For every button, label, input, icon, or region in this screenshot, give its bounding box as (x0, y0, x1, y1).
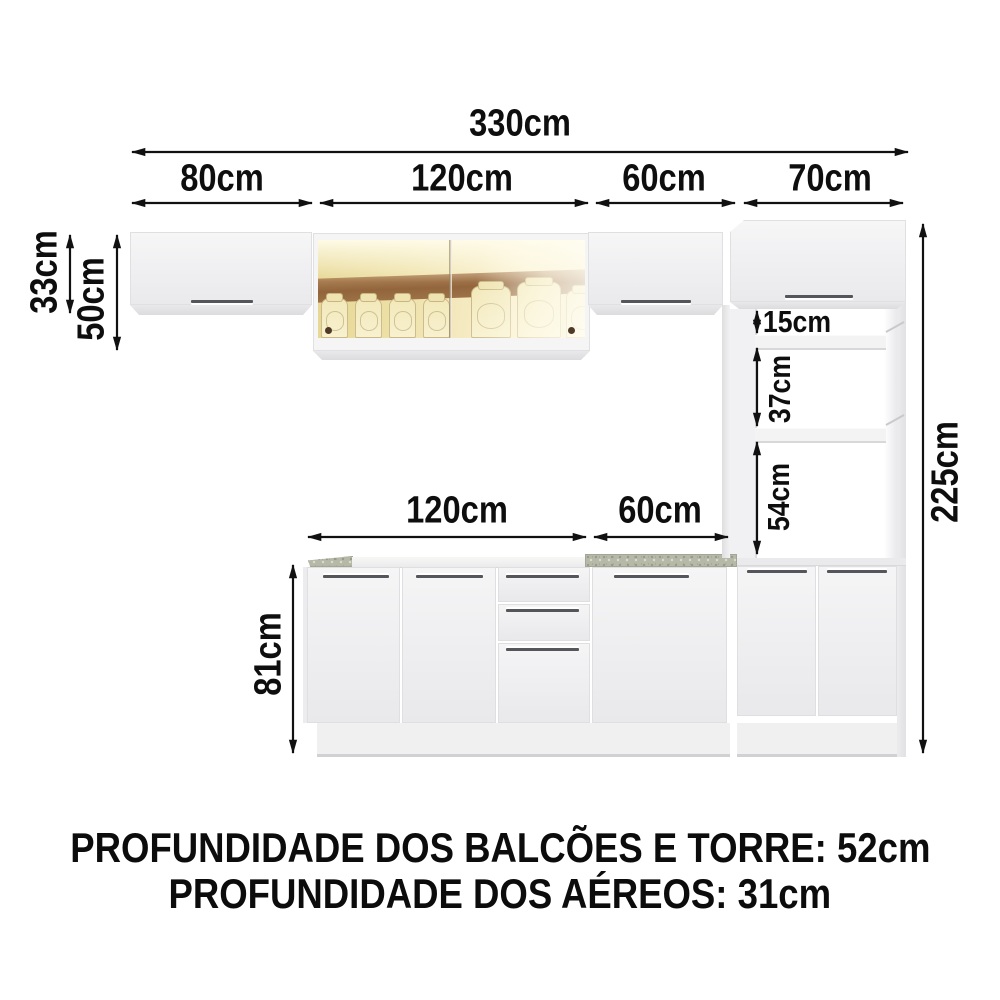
wall-cabinet-left (130, 232, 312, 305)
base-hob-door (592, 567, 727, 723)
tower-top-door (730, 220, 906, 302)
label-segment-70: 70cm (788, 158, 872, 201)
label-gap-15: 15cm (763, 304, 831, 340)
label-total-width: 330cm (469, 103, 571, 146)
glass-door-knob-left (325, 327, 332, 334)
base-plinth (317, 723, 730, 757)
base-door-1 (307, 567, 400, 723)
glass-door-divider (449, 240, 452, 338)
base-door-1-handle (323, 575, 389, 578)
tower-base-section (730, 558, 906, 723)
drawer-2-handle (506, 609, 579, 612)
label-height-81: 81cm (248, 612, 291, 696)
drawer-1-handle (506, 575, 579, 578)
kitchen-dimensions-diagram: 330cm 80cm 120cm 60cm 70cm 33cm 50cm 15c… (0, 0, 1000, 1000)
label-height-50: 50cm (71, 257, 114, 341)
wall-cabinet-60-handle (621, 300, 691, 303)
label-base-120: 120cm (406, 490, 508, 533)
niche-left-panel (730, 309, 757, 558)
tower-base-door-right-handle (827, 570, 887, 573)
tower-plinth (737, 723, 897, 757)
drawer-unit (498, 567, 590, 723)
base-hob-door-handle (614, 575, 689, 578)
wall-cabinet-left-handle (191, 300, 253, 303)
glass-wall-cabinet-glass (318, 240, 585, 338)
drawer-3-handle (506, 648, 579, 651)
label-base-60: 60cm (618, 490, 702, 533)
label-height-225: 225cm (925, 421, 968, 523)
footer-depth-line-1-text: PROFUNDIDADE DOS BALCÕES E TORRE: 52cm (70, 824, 930, 872)
glass-wall-cabinet (313, 233, 590, 351)
tower-open-niche (730, 309, 906, 558)
countertop-granite-hob (585, 554, 737, 567)
wall-cabinet-60 (588, 232, 723, 305)
tower-left-side-panel (722, 305, 730, 558)
countertop-left-end (308, 556, 353, 567)
drawer-1 (498, 567, 590, 602)
drawer-2 (498, 604, 590, 641)
tower-base-door-left (737, 566, 816, 716)
label-segment-80: 80cm (180, 158, 264, 201)
tower-base-top-edge (730, 558, 906, 566)
tower-cabinet (730, 220, 906, 757)
base-door-2-handle (416, 575, 483, 578)
footer-depth-line-2-text: PROFUNDIDADE DOS AÉREOS: 31cm (169, 870, 832, 918)
glass-wall-cabinet-bottom-panel (313, 351, 590, 360)
wall-cabinet-left-bottom-panel (130, 305, 312, 315)
tower-base-door-left-handle (747, 570, 807, 573)
footer-depth-line-1: PROFUNDIDADE DOS BALCÕES E TORRE: 52cm (0, 824, 1000, 872)
wall-cabinet-60-bottom-panel (588, 305, 723, 315)
drawer-3 (498, 643, 590, 723)
label-gap-37: 37cm (762, 355, 798, 423)
tower-top-door-handle (785, 295, 853, 298)
label-height-33: 33cm (24, 230, 67, 314)
label-gap-54: 54cm (761, 463, 797, 531)
footer-depth-line-2: PROFUNDIDADE DOS AÉREOS: 31cm (0, 870, 1000, 918)
niche-shelf-2 (755, 428, 886, 443)
label-segment-120: 120cm (411, 158, 513, 201)
base-door-2 (402, 567, 496, 723)
tower-base-door-right (818, 566, 897, 716)
glass-door-knob-right (568, 327, 575, 334)
label-segment-60: 60cm (622, 158, 706, 201)
